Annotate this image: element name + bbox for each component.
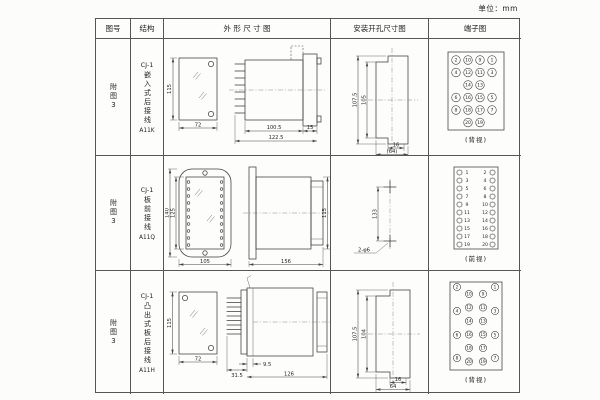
- svg-text:14: 14: [466, 319, 472, 324]
- row1-model: CJ-1: [141, 61, 154, 69]
- svg-text:16: 16: [482, 226, 488, 232]
- row3-view-label: (背视): [465, 375, 487, 384]
- svg-text:1: 1: [494, 285, 497, 290]
- row2-fig-label: 附图3: [110, 199, 117, 227]
- row1-structure-text: 嵌入式后接线: [144, 71, 151, 125]
- svg-text:14: 14: [465, 82, 471, 88]
- row3-outline-cell: 115 72 9.5: [164, 271, 331, 394]
- row1-fig-cell: 附图3: [96, 39, 131, 156]
- row1-front-view: 115 72: [167, 58, 217, 131]
- dim-total-length: 122.5: [268, 135, 283, 141]
- dim-cut-total-w: 64: [389, 384, 396, 390]
- spec-table: 图号 结构 外 形 尺 寸 图 安装开孔尺寸图 端子图 附图3 CJ-1 嵌入式…: [95, 18, 520, 393]
- svg-text:19: 19: [477, 120, 483, 126]
- header-structure: 结构: [131, 19, 164, 39]
- row1-side-view: 100.5 15 122.5: [229, 46, 325, 144]
- row3-model: CJ-1: [141, 292, 154, 300]
- svg-text:10: 10: [482, 202, 488, 208]
- svg-text:10: 10: [465, 57, 471, 63]
- svg-text:15: 15: [464, 226, 470, 232]
- row2-front-view: 140 125 105: [165, 169, 231, 267]
- dim-hole-pitch: 133: [372, 209, 378, 219]
- header-fig-no: 图号: [96, 19, 131, 39]
- svg-text:10: 10: [466, 292, 472, 297]
- svg-text:11: 11: [480, 305, 486, 310]
- dim-front-w: 72: [194, 357, 201, 363]
- dim-flange-width: 15: [306, 125, 313, 131]
- svg-text:2: 2: [456, 285, 459, 290]
- dim-cut-outer-h: 107.5: [352, 92, 358, 107]
- dim-body-length: 100.5: [266, 125, 281, 131]
- svg-text:7: 7: [466, 194, 469, 200]
- row1-fig-label: 附图3: [110, 83, 117, 111]
- dim-cut-slot-w: 16: [394, 377, 401, 383]
- dim-body-len: 126: [284, 372, 294, 378]
- svg-text:11: 11: [464, 210, 470, 216]
- row2-mounting-drawing: 133 2-φ6: [332, 157, 428, 270]
- svg-text:15: 15: [480, 332, 486, 337]
- dim-front-w: 105: [200, 259, 210, 265]
- svg-text:9: 9: [482, 292, 485, 297]
- svg-text:4: 4: [456, 309, 459, 314]
- svg-text:12: 12: [466, 305, 472, 310]
- unit-label: 单位：mm: [478, 3, 518, 14]
- row3-fig-label: 附图3: [110, 319, 117, 347]
- row3-terminals: 2 4 6 8 10 12 14 16 18 20 9 11 13 15 17 …: [453, 283, 498, 365]
- svg-text:5: 5: [491, 95, 494, 101]
- svg-text:2: 2: [455, 57, 458, 63]
- header-terminal: 端子图: [429, 19, 521, 39]
- row2-terminals: 12 34 56 78 910 1112 1314 1516 1718 1920: [457, 169, 495, 247]
- row3-code: A11H: [139, 368, 155, 374]
- svg-text:8: 8: [456, 356, 459, 361]
- svg-text:6: 6: [456, 333, 459, 338]
- row3-mounting-cell: 107.5 104 16 64: [331, 271, 429, 394]
- dim-front-inner-h: 125: [170, 208, 176, 218]
- row1-code: A11K: [139, 128, 154, 134]
- row2-outline-drawing: 140 125 105 156 115: [165, 157, 330, 270]
- header-mounting: 安装开孔尺寸图: [331, 19, 429, 39]
- row2-fig-cell: 附图3: [96, 156, 131, 271]
- row1-terminal-cell: 2 10 9 1 4 12 11 3 14 13 6 16 15 5 8 18: [429, 39, 521, 156]
- svg-text:16: 16: [466, 332, 472, 337]
- row2-terminal-cell: 12 34 56 78 910 1112 1314 1516 1718 1920…: [429, 156, 521, 271]
- dim-hole-note: 2-φ6: [358, 247, 370, 253]
- svg-text:4: 4: [484, 178, 487, 184]
- svg-text:5: 5: [494, 333, 497, 338]
- svg-text:17: 17: [477, 107, 483, 113]
- svg-text:18: 18: [482, 234, 488, 240]
- dim-body-h: 115: [322, 208, 328, 218]
- dim-body-len: 156: [281, 259, 291, 265]
- row2-front-terminal-dots: [187, 180, 223, 246]
- svg-text:8: 8: [455, 107, 458, 113]
- row1-mounting-cell: 107.5 105 16 (64): [331, 39, 429, 156]
- svg-text:16: 16: [465, 95, 471, 101]
- row1-outline-drawing: 115 72 100.5 15: [165, 40, 330, 155]
- svg-text:2: 2: [484, 170, 487, 176]
- dim-front-h: 115: [167, 318, 173, 328]
- svg-text:17: 17: [480, 346, 486, 351]
- svg-text:20: 20: [465, 120, 471, 126]
- svg-text:18: 18: [466, 346, 472, 351]
- row3-structure-cell: CJ-1 凸出式板后接线 A11H: [131, 271, 164, 394]
- svg-text:20: 20: [466, 359, 472, 364]
- svg-text:20: 20: [482, 242, 488, 248]
- row2-code: A11Q: [139, 235, 155, 241]
- row2-view-label: (前视): [465, 254, 487, 263]
- row2-outline-cell: 140 125 105 156 115: [164, 156, 331, 271]
- header-outline: 外 形 尺 寸 图: [164, 19, 331, 39]
- svg-text:13: 13: [477, 82, 483, 88]
- row3-fig-cell: 附图3: [96, 271, 131, 394]
- svg-text:13: 13: [480, 319, 486, 324]
- svg-text:6: 6: [484, 186, 487, 192]
- dim-cut-inner-h: 105: [361, 95, 367, 105]
- dim-front-width: 72: [194, 122, 201, 128]
- svg-text:12: 12: [465, 70, 471, 76]
- dim-cut-outer-h: 107.5: [352, 327, 358, 342]
- svg-text:8: 8: [484, 194, 487, 200]
- svg-text:18: 18: [465, 107, 471, 113]
- row1-terminals: 2 10 9 1 4 12 11 3 14 13 6 16 15 5 8 18: [452, 55, 497, 126]
- row3-outline-drawing: 115 72 9.5: [165, 272, 330, 393]
- svg-text:7: 7: [491, 107, 494, 113]
- row1-view-label: (背视): [465, 135, 487, 144]
- row2-terminal-diagram: 12 34 56 78 910 1112 1314 1516 1718 1920…: [430, 157, 520, 270]
- row3-side-view: 9.5 31.5 126: [227, 276, 330, 380]
- dim-front-height: 115: [167, 84, 173, 94]
- svg-text:1: 1: [491, 57, 494, 63]
- row2-side-view: 156 115: [243, 167, 330, 267]
- row2-model: CJ-1: [141, 186, 154, 194]
- row2-mounting-cell: 133 2-φ6: [331, 156, 429, 271]
- row1-outline-cell: 115 72 100.5 15: [164, 39, 331, 156]
- row3-terminal-diagram: 2 4 6 8 10 12 14 16 18 20 9 11 13 15 17 …: [430, 272, 520, 393]
- svg-text:5: 5: [466, 186, 469, 192]
- svg-text:13: 13: [464, 218, 470, 224]
- row3-structure-text: 凸出式板后接线: [144, 302, 151, 365]
- row1-terminal-diagram: 2 10 9 1 4 12 11 3 14 13 6 16 15 5 8 18: [430, 40, 520, 155]
- row3-front-view: 115 72: [167, 292, 217, 365]
- svg-text:12: 12: [482, 210, 488, 216]
- dim-cut-slot-w: 16: [392, 142, 399, 148]
- svg-text:15: 15: [477, 95, 483, 101]
- svg-text:7: 7: [494, 356, 497, 361]
- row1-structure-cell: CJ-1 嵌入式后接线 A11K: [131, 39, 164, 156]
- svg-text:6: 6: [455, 95, 458, 101]
- svg-text:19: 19: [464, 242, 470, 248]
- svg-text:9: 9: [479, 57, 482, 63]
- svg-text:14: 14: [482, 218, 488, 224]
- svg-text:11: 11: [477, 70, 483, 76]
- row3-mounting-drawing: 107.5 104 16 64: [332, 272, 428, 393]
- svg-text:3: 3: [491, 70, 494, 76]
- dim-pin-len: 31.5: [231, 373, 243, 379]
- row3-terminal-cell: 2 4 6 8 10 12 14 16 18 20 9 11 13 15 17 …: [429, 271, 521, 394]
- svg-text:9: 9: [466, 202, 469, 208]
- dim-cut-inner-h: 104: [361, 328, 367, 339]
- svg-text:19: 19: [480, 359, 486, 364]
- document-page: 单位：mm 图号 结构 外 形 尺 寸 图 安装开孔尺寸图 端子图 附图3 CJ…: [0, 0, 600, 400]
- svg-text:3: 3: [494, 309, 497, 314]
- row1-mounting-drawing: 107.5 105 16 (64): [332, 40, 428, 155]
- svg-text:4: 4: [455, 70, 458, 76]
- row2-structure-cell: CJ-1 板前接线 A11Q: [131, 156, 164, 271]
- dim-cut-total-w: (64): [386, 149, 397, 155]
- svg-text:17: 17: [464, 234, 470, 240]
- svg-text:1: 1: [466, 170, 469, 176]
- dim-step-len: 9.5: [263, 362, 271, 368]
- svg-text:3: 3: [466, 178, 469, 184]
- row2-structure-text: 板前接线: [144, 196, 151, 232]
